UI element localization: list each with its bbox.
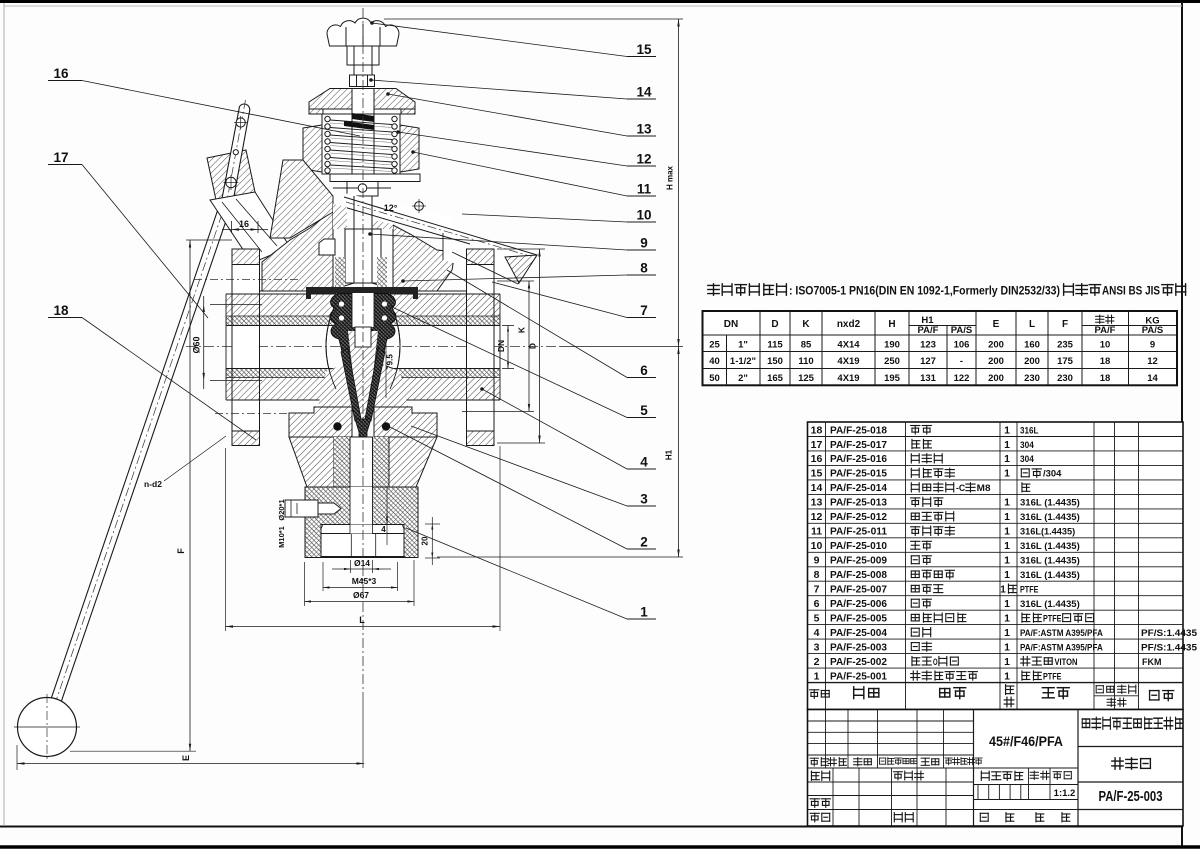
svg-text:16: 16	[811, 453, 823, 465]
svg-text:nxd2: nxd2	[837, 319, 861, 330]
svg-text:PA/F-25-012: PA/F-25-012	[830, 511, 887, 523]
svg-text:1: 1	[640, 605, 648, 620]
svg-text:M10*1: M10*1	[277, 526, 286, 548]
svg-text:127: 127	[920, 356, 936, 367]
svg-text:5: 5	[640, 403, 648, 418]
svg-text:9: 9	[814, 555, 820, 567]
svg-text:PA/F-25-013: PA/F-25-013	[830, 497, 887, 509]
svg-text:PA/F-25-007: PA/F-25-007	[830, 584, 887, 596]
svg-text:: ISO7005-1 PN16(DIN EN 1092-1: : ISO7005-1 PN16(DIN EN 1092-1,Formerly …	[789, 284, 1060, 298]
svg-text:-: -	[960, 356, 963, 367]
svg-text:PA/F-25-017: PA/F-25-017	[830, 439, 887, 451]
svg-text:160: 160	[1024, 339, 1040, 350]
svg-text:4: 4	[640, 455, 648, 470]
svg-text:L: L	[359, 615, 365, 625]
svg-text:235: 235	[1057, 339, 1074, 350]
svg-text:16: 16	[239, 219, 249, 229]
svg-text:1: 1	[1004, 598, 1010, 610]
svg-text:1-1/2": 1-1/2"	[730, 356, 756, 367]
svg-text:E: E	[181, 755, 191, 761]
svg-text:PA/F: PA/F	[918, 325, 939, 336]
svg-text:5: 5	[814, 612, 820, 624]
svg-text:PA/S: PA/S	[951, 325, 972, 336]
svg-text:Ø60: Ø60	[192, 336, 202, 353]
svg-text:304: 304	[1020, 440, 1034, 451]
svg-text:DN: DN	[496, 340, 506, 352]
svg-text:200: 200	[988, 356, 1004, 367]
svg-text:PA/F-25-015: PA/F-25-015	[830, 468, 887, 480]
svg-text:D: D	[528, 343, 538, 349]
svg-text:150: 150	[767, 356, 783, 367]
svg-text:250: 250	[884, 356, 900, 367]
svg-text:123: 123	[920, 339, 936, 350]
svg-text:1: 1	[1004, 627, 1010, 639]
svg-text:F: F	[176, 548, 186, 554]
svg-text:PA/F-25-003: PA/F-25-003	[830, 641, 887, 653]
svg-text:9: 9	[640, 236, 648, 251]
svg-text:1: 1	[1004, 569, 1010, 581]
svg-text:131: 131	[920, 373, 937, 384]
svg-text:3: 3	[814, 641, 820, 653]
svg-text:9: 9	[1150, 339, 1155, 350]
svg-text:-C: -C	[956, 483, 965, 494]
svg-text:1: 1	[1004, 526, 1010, 538]
svg-text:1: 1	[1004, 656, 1010, 668]
svg-text:PA/F-25-018: PA/F-25-018	[830, 424, 887, 436]
svg-text:17: 17	[53, 150, 68, 165]
svg-text:1: 1	[1004, 439, 1010, 451]
svg-text:8: 8	[814, 569, 820, 581]
svg-text:PA/F:ASTM A395/PFA: PA/F:ASTM A395/PFA	[1020, 628, 1103, 639]
svg-text:17: 17	[811, 439, 823, 451]
svg-text:M8: M8	[977, 483, 991, 494]
svg-text:E: E	[993, 319, 1000, 330]
svg-text:PA/F-25-010: PA/F-25-010	[830, 540, 887, 552]
svg-text:316L: 316L	[1020, 425, 1039, 436]
svg-text:1: 1	[1004, 497, 1010, 509]
svg-text:DN: DN	[724, 319, 738, 330]
svg-text:2": 2"	[738, 373, 748, 384]
svg-text:115: 115	[767, 339, 783, 350]
svg-text:18: 18	[1100, 373, 1111, 384]
svg-text:18: 18	[53, 303, 69, 318]
svg-text:316L (1.4435): 316L (1.4435)	[1020, 512, 1080, 523]
svg-text:230: 230	[1057, 373, 1073, 384]
svg-text:6: 6	[814, 598, 820, 610]
svg-text:Ø20*1: Ø20*1	[277, 499, 286, 520]
svg-text:122: 122	[954, 373, 970, 384]
svg-text:125: 125	[798, 373, 815, 384]
svg-text:D: D	[771, 319, 778, 330]
svg-text:1: 1	[1004, 670, 1010, 682]
svg-text:H1: H1	[665, 449, 674, 460]
svg-text:316L (1.4435): 316L (1.4435)	[1020, 541, 1080, 552]
svg-text:200: 200	[988, 339, 1004, 350]
svg-text:PA/F-25-005: PA/F-25-005	[830, 612, 887, 624]
svg-text:4X19: 4X19	[837, 373, 859, 384]
svg-text:165: 165	[767, 373, 784, 384]
svg-text:18: 18	[811, 424, 823, 436]
svg-text:PA/F-25-011: PA/F-25-011	[830, 526, 887, 538]
svg-text:PTFE: PTFE	[1043, 613, 1061, 624]
svg-text:316L (1.4435): 316L (1.4435)	[1020, 599, 1080, 610]
svg-text:1: 1	[1004, 511, 1010, 523]
svg-text:7: 7	[640, 303, 648, 318]
svg-text:79.5: 79.5	[386, 354, 395, 370]
svg-text:14: 14	[636, 85, 652, 100]
svg-text:O: O	[933, 657, 938, 668]
svg-text:PA/F-25-014: PA/F-25-014	[830, 482, 887, 494]
svg-text:1: 1	[1004, 540, 1010, 552]
svg-text:1": 1"	[738, 339, 748, 350]
svg-text:8: 8	[640, 261, 648, 276]
svg-text:PA/F-25-004: PA/F-25-004	[830, 627, 887, 639]
svg-text:H max: H max	[666, 165, 675, 190]
svg-text:4: 4	[381, 525, 386, 534]
svg-text:15: 15	[636, 42, 652, 57]
svg-text:14: 14	[811, 482, 823, 494]
svg-text:H: H	[888, 319, 895, 330]
svg-text:50: 50	[709, 373, 720, 384]
svg-text:13: 13	[636, 122, 652, 137]
svg-text:PA/F-25-001: PA/F-25-001	[830, 670, 887, 682]
svg-text:3: 3	[640, 492, 648, 507]
svg-text:12: 12	[1147, 356, 1158, 367]
svg-text:110: 110	[798, 356, 813, 367]
svg-text:PTFE: PTFE	[1020, 585, 1038, 596]
svg-text:190: 190	[884, 339, 900, 350]
svg-text:1: 1	[1000, 585, 1006, 596]
svg-text:12: 12	[636, 152, 651, 167]
svg-text:16: 16	[53, 66, 69, 81]
svg-text:316L (1.4435): 316L (1.4435)	[1020, 498, 1080, 509]
svg-text:316L(1.4435): 316L(1.4435)	[1020, 527, 1075, 538]
svg-text:12: 12	[811, 511, 823, 523]
svg-text:PA/F-25-008: PA/F-25-008	[830, 569, 887, 581]
svg-text:VITON: VITON	[1055, 657, 1078, 668]
svg-text:PTFE: PTFE	[1043, 671, 1061, 682]
svg-text:14: 14	[1147, 373, 1158, 384]
svg-text:FKM: FKM	[1142, 657, 1162, 667]
svg-text:PA/F: PA/F	[1095, 325, 1116, 336]
svg-text:40: 40	[709, 356, 720, 367]
svg-text:K: K	[517, 326, 527, 333]
svg-text:11: 11	[811, 526, 822, 538]
svg-text:PF/S:1.4435: PF/S:1.4435	[1141, 642, 1197, 652]
svg-text:6: 6	[640, 363, 648, 378]
svg-text:n-d2: n-d2	[144, 479, 162, 489]
svg-text:1: 1	[1004, 468, 1010, 480]
svg-text:2: 2	[640, 535, 648, 550]
svg-text:13: 13	[811, 497, 823, 509]
svg-text:106: 106	[954, 339, 970, 350]
svg-text:PA/F-25-016: PA/F-25-016	[830, 453, 887, 465]
svg-text:PA/F-25-003: PA/F-25-003	[1099, 789, 1163, 805]
svg-text:1:1.2: 1:1.2	[1054, 788, 1076, 799]
svg-text:F: F	[1062, 319, 1068, 330]
svg-text:4: 4	[814, 627, 820, 639]
svg-text:15: 15	[811, 468, 823, 480]
svg-text:175: 175	[1057, 356, 1074, 367]
svg-text:10: 10	[811, 540, 823, 552]
svg-text:1: 1	[1004, 555, 1010, 567]
svg-text:304: 304	[1020, 454, 1034, 465]
svg-text:Ø14: Ø14	[354, 558, 370, 568]
svg-text:7: 7	[814, 584, 820, 596]
svg-text:12°: 12°	[384, 203, 398, 213]
svg-text:L: L	[1029, 319, 1035, 330]
svg-text:Ø67: Ø67	[353, 590, 369, 600]
svg-text:2: 2	[814, 656, 820, 668]
svg-text:1: 1	[1004, 612, 1010, 624]
svg-text:85: 85	[801, 339, 812, 350]
svg-text:1: 1	[1004, 641, 1010, 653]
svg-text:PA/F-25-002: PA/F-25-002	[830, 656, 887, 668]
svg-text:200: 200	[1024, 356, 1040, 367]
svg-text:230: 230	[1024, 373, 1040, 384]
svg-text:200: 200	[988, 373, 1004, 384]
svg-text:4X14: 4X14	[837, 339, 860, 350]
svg-text:11: 11	[637, 182, 652, 197]
svg-text:10: 10	[1100, 339, 1111, 350]
svg-text:1: 1	[1004, 424, 1010, 436]
svg-text:10: 10	[636, 208, 651, 223]
svg-text:PA/F-25-006: PA/F-25-006	[830, 598, 887, 610]
svg-text:ANSI BS JIS: ANSI BS JIS	[1102, 284, 1160, 298]
svg-text:316L (1.4435): 316L (1.4435)	[1020, 570, 1080, 581]
svg-text:25: 25	[709, 339, 720, 350]
svg-text:195: 195	[884, 373, 901, 384]
svg-text:PA/F:ASTM A395/PFA: PA/F:ASTM A395/PFA	[1020, 642, 1103, 653]
svg-text:1: 1	[814, 670, 820, 682]
svg-text:316L (1.4435): 316L (1.4435)	[1020, 556, 1080, 567]
svg-text:1: 1	[1004, 453, 1010, 465]
svg-text:PA/S: PA/S	[1142, 325, 1163, 336]
svg-text:45#/F46/PFA: 45#/F46/PFA	[989, 734, 1063, 749]
svg-text:K: K	[802, 319, 810, 330]
svg-text:PF/S:1.4435: PF/S:1.4435	[1141, 628, 1197, 638]
svg-text:/304: /304	[1043, 469, 1062, 480]
svg-text:18: 18	[1100, 356, 1111, 367]
svg-text:4X19: 4X19	[837, 356, 859, 367]
svg-text:M45*3: M45*3	[352, 576, 377, 586]
svg-text:PA/F-25-009: PA/F-25-009	[830, 555, 887, 567]
